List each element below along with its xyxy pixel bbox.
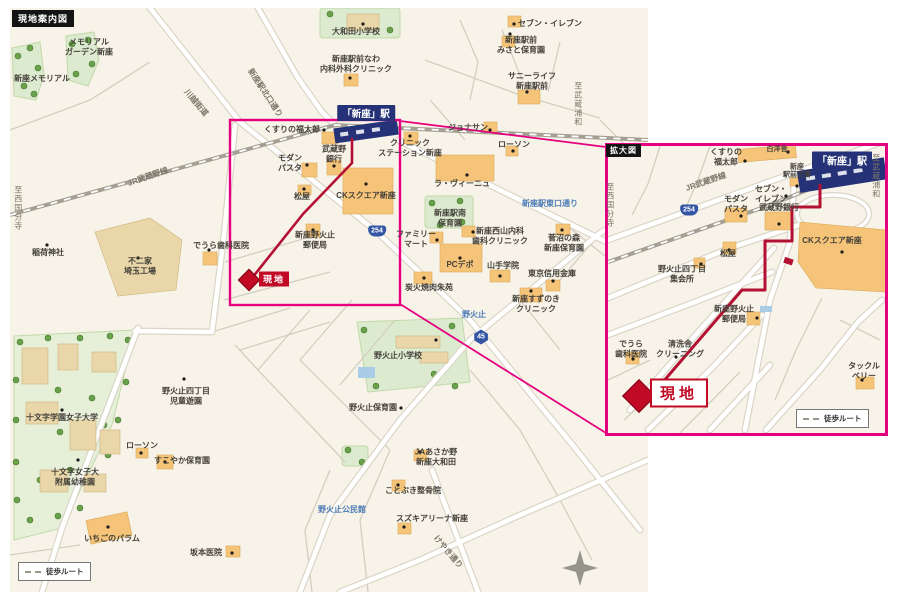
inset-title-badge: 拡大図 [606, 144, 641, 157]
site-label: 現地 [259, 272, 289, 287]
inset-station-label: 「新座」駅 [812, 152, 872, 169]
inset-walk-route-label: 徒歩ルート [824, 413, 862, 424]
site-guide-map: メモリアル ガーデン新座新座メモリアル大和田小学校セブン・イレブン新座駅前 みさ… [0, 0, 900, 600]
main-map [10, 8, 648, 592]
inset-site-label: 現地 [650, 379, 708, 408]
station-label: 「新座」駅 [337, 105, 395, 121]
inset-walk-route-line-sample [803, 418, 819, 420]
main-map-art [10, 8, 648, 592]
legend: 徒歩ルート [18, 562, 91, 581]
walk-route-label: 徒歩ルート [46, 566, 84, 577]
inset-legend: 徒歩ルート [796, 409, 869, 428]
walk-route-line-sample [25, 571, 41, 573]
map-title-badge: 現地案内図 [12, 10, 74, 27]
